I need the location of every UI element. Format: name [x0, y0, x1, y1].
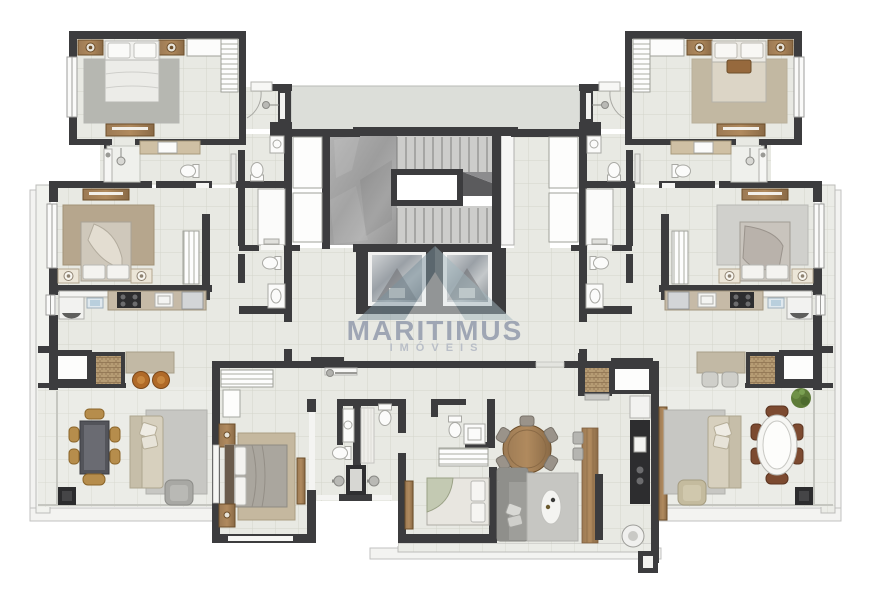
svg-text:IMÓVEIS: IMÓVEIS [390, 341, 485, 354]
